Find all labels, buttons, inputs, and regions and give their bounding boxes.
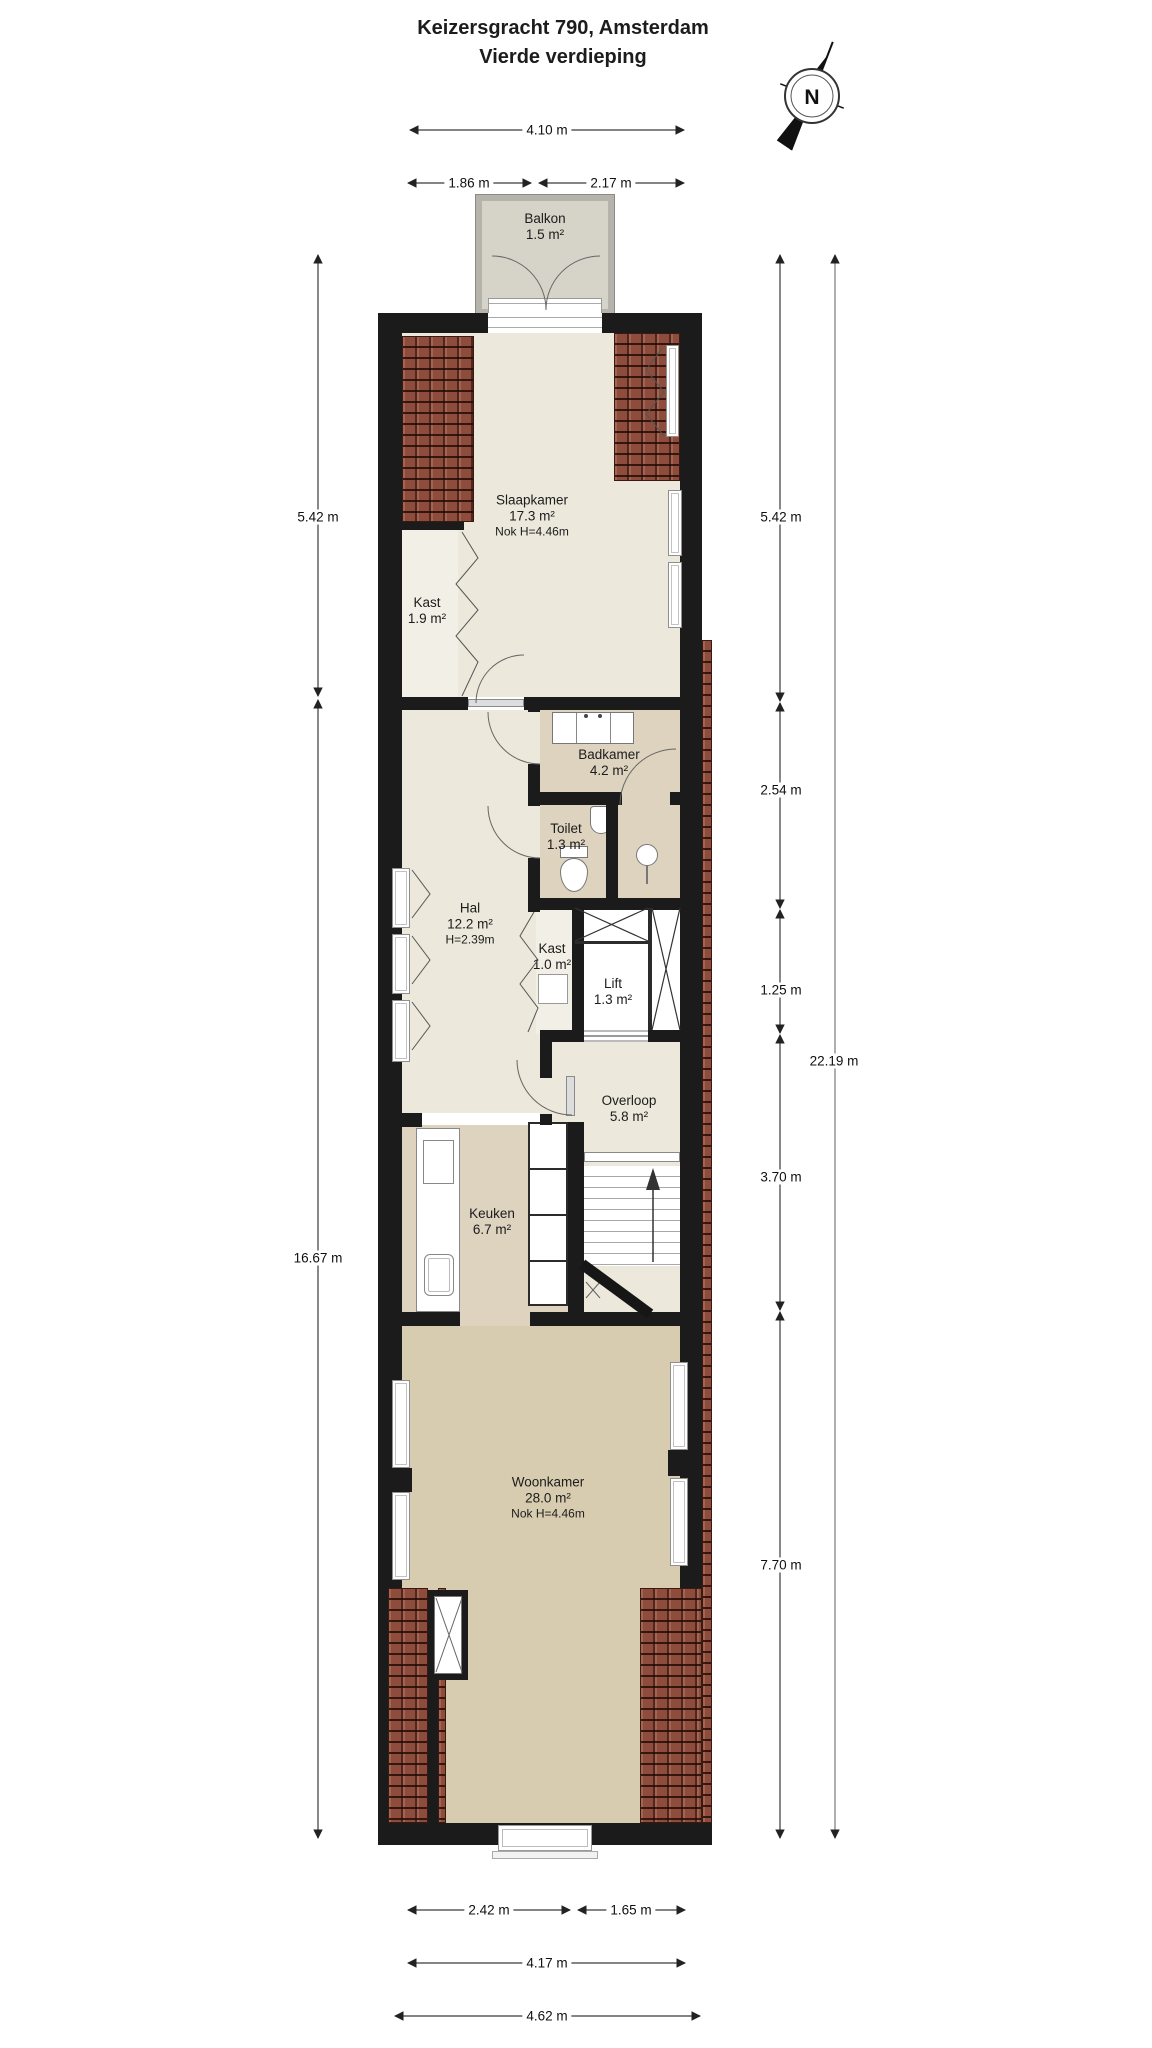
- lift-door: [584, 1030, 648, 1042]
- dim-bottom-left: 2.42 m: [464, 1903, 513, 1918]
- dim-bottom-total: 4.62 m: [522, 2009, 571, 2024]
- balkon-door-opening: [488, 313, 602, 333]
- window-bottom-facade: [498, 1825, 592, 1851]
- dim-left-upper: 5.42 m: [293, 510, 342, 525]
- badkamer-door-opening: [528, 712, 540, 764]
- window-right-2: [668, 562, 682, 628]
- window-hal-3: [392, 1000, 410, 1062]
- dim-top-total: 4.10 m: [522, 123, 571, 138]
- dim-left-lower: 16.67 m: [290, 1251, 347, 1266]
- slaapkamer-door-leaf: [468, 699, 524, 707]
- roof-brick-woonkamer-left-a: [388, 1588, 428, 1823]
- floorplan-page: { "title": { "line1": "Keizersgracht 790…: [0, 0, 1152, 2048]
- openings-layer: [0, 0, 1152, 2048]
- window-hal-1: [392, 868, 410, 928]
- window-woonkamer-left-1: [392, 1380, 410, 1468]
- roof-brick-outer-right: [702, 640, 712, 1823]
- window-woonkamer-left-2: [392, 1492, 410, 1580]
- keuken-woonkamer-opening: [460, 1312, 530, 1326]
- window-woonkamer-right-1: [670, 1362, 688, 1450]
- roof-brick-slaapkamer-left: [402, 336, 474, 522]
- window-hal-2: [392, 934, 410, 994]
- window-bottom-sill: [492, 1851, 598, 1859]
- roof-window-kast: [666, 345, 679, 437]
- overloop-door-leaf: [566, 1076, 575, 1116]
- skylight-window: [434, 1596, 462, 1674]
- dim-right-seg1: 5.42 m: [756, 510, 805, 525]
- roof-brick-woonkamer-right: [640, 1588, 702, 1823]
- dim-right-seg4: 3.70 m: [756, 1170, 805, 1185]
- dim-top-right: 2.17 m: [586, 176, 635, 191]
- dim-right-seg5: 7.70 m: [756, 1558, 805, 1573]
- dim-right-seg3: 1.25 m: [756, 983, 805, 998]
- dim-bottom-inner: 4.17 m: [522, 1956, 571, 1971]
- wall-channel-bottom-left: [428, 1680, 438, 1823]
- dim-bottom-right: 1.65 m: [606, 1903, 655, 1918]
- dim-right-total: 22.19 m: [806, 1054, 863, 1069]
- window-right-1: [668, 490, 682, 556]
- window-woonkamer-right-2: [670, 1478, 688, 1566]
- toilet-door-opening: [528, 806, 540, 858]
- dim-top-left: 1.86 m: [444, 176, 493, 191]
- dim-right-seg2: 2.54 m: [756, 783, 805, 798]
